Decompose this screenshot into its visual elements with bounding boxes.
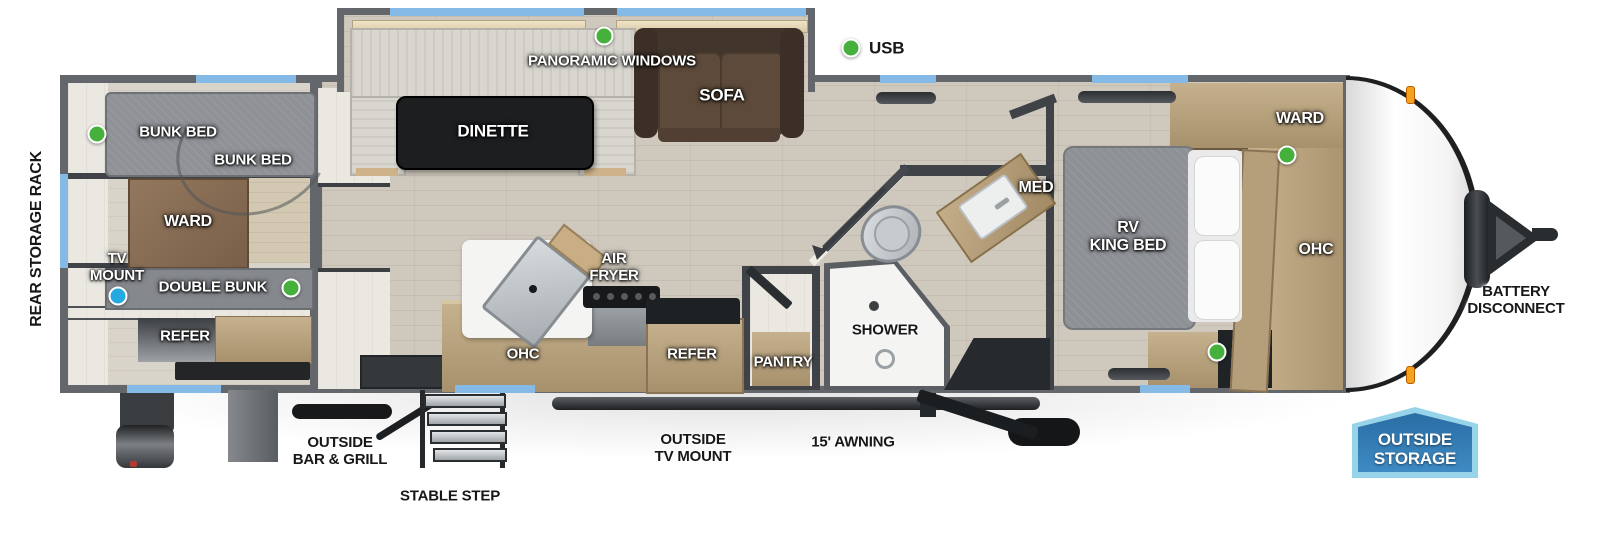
bedroom-ward-label: WARD [1276,110,1324,128]
bedroom-bottom-window [1140,385,1190,393]
stable-step-tread-2 [427,412,507,426]
stable-step-tread-1 [424,394,506,408]
entry-step-interior [360,355,448,389]
slideout-window-right [617,8,806,16]
rear-storage-rack-label: REAR STORAGE RACK [28,139,46,339]
marker-light-top [1406,86,1415,104]
rv-king-bed-label: RV KING BED [1090,219,1167,255]
rear-side-window [60,174,68,268]
tv-mount-label: TV MOUNT [90,251,144,285]
floor-vent-bedroom-top [1078,91,1176,103]
rear-tv-shelf [175,362,310,380]
sofa-front [658,128,780,142]
bed-pillow-bottom [1194,240,1240,320]
outside-storage-label: OUTSIDE STORAGE [1374,430,1456,468]
usb-legend-label: USB [869,38,904,57]
usb-indicator-wardrobe [1278,146,1297,165]
shower-label: SHOWER [852,323,918,340]
stable-step-tread-4 [433,448,507,462]
shower-drain [875,349,895,369]
living-top-window [880,75,936,83]
rear-top-window [196,75,296,83]
outside-bar-grill-label: OUTSIDE BAR & GRILL [293,435,387,469]
floor-vent-living [876,92,936,104]
usb-indicator-panoramic [595,27,614,46]
double-bunk-label: DOUBLE BUNK [159,280,268,297]
stable-step-label: STABLE STEP [400,489,500,506]
kitchen-refer-label: REFER [667,347,717,364]
toilet-lid [874,216,910,252]
med-label: MED [1019,179,1054,197]
tv-mount-indicator [109,287,128,306]
dinette-bench-base-right [584,168,626,176]
slideout-window-left [390,8,584,16]
usb-indicator-bunkroom [88,125,107,144]
front-cap [1346,80,1474,388]
rear-bumper-post [228,390,278,462]
pantry-label: PANTRY [754,355,813,372]
rear-bottom-window [127,385,221,393]
usb-legend-dot [842,39,861,58]
stabilizer-jack-light [130,461,137,467]
bunk-bed-lower-label: BUNK BED [214,153,292,170]
kitchen-ohc-label: OHC [507,347,540,364]
hitch-coupler-arm [1532,228,1558,241]
floorplan-canvas: BUNK BED BUNK BED WARD TV MOUNT DOUBLE B… [0,0,1600,548]
stable-step-tread-3 [430,430,507,444]
stove-burners [593,293,600,300]
floor-vent-bedroom-bottom [1108,368,1170,380]
grill-arm-bar [292,404,392,419]
bed-pillow-top [1194,156,1240,236]
stabilizer-jack-cylinder [116,425,174,468]
rear-counter [215,316,312,364]
air-fryer-label: AIR FRYER [589,251,638,285]
marker-light-bottom [1406,366,1415,384]
rear-ward-label: WARD [164,213,212,231]
rear-refer-label: REFER [160,329,210,346]
battery-disconnect-label: BATTERY DISCONNECT [1467,284,1564,318]
bunk-bed-upper-label: BUNK BED [139,125,217,142]
outside-tv-mount-label: OUTSIDE TV MOUNT [655,432,732,466]
sofa-arm-right [780,28,804,138]
usb-indicator-bedroom [1208,343,1227,362]
shower-head [869,301,879,311]
panoramic-windows-label: PANORAMIC WINDOWS [528,54,696,71]
usb-indicator-double-bunk [282,279,301,298]
kitchen-refer-top [646,298,740,324]
kitchen-bottom-window [455,385,535,393]
kitchen-sink-drain [529,285,537,293]
bedroom-top-window [1092,75,1188,83]
bedroom-ohc-label: OHC [1299,241,1334,259]
awning-label: 15' AWNING [811,435,895,452]
sofa-arm-left [634,28,658,138]
dinette-label: DINETTE [457,121,528,140]
tongue-jack-bar [1464,190,1490,288]
dinette-bench-base-left [356,168,398,176]
sofa-label: SOFA [699,85,745,104]
